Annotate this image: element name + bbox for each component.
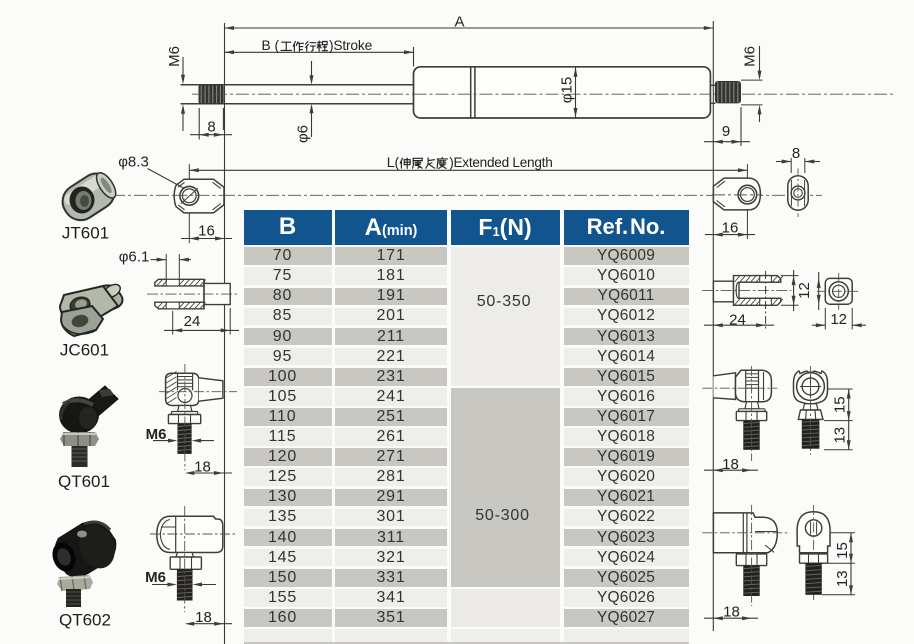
svg-text:12: 12 xyxy=(796,282,813,299)
svg-text:15: 15 xyxy=(834,542,851,559)
svg-text:9: 9 xyxy=(722,123,730,140)
svg-text:φ6.1: φ6.1 xyxy=(119,249,150,266)
svg-text:18: 18 xyxy=(722,456,739,473)
svg-text:M6: M6 xyxy=(145,569,166,586)
svg-text:φ15: φ15 xyxy=(559,77,576,103)
svg-text:QT602: QT602 xyxy=(59,611,111,630)
svg-text:M6: M6 xyxy=(166,46,183,67)
svg-text:18: 18 xyxy=(195,609,212,626)
svg-text:13: 13 xyxy=(834,570,851,587)
svg-text:13: 13 xyxy=(832,427,849,444)
svg-text:16: 16 xyxy=(198,223,215,240)
svg-text:18: 18 xyxy=(723,604,740,621)
svg-text:)Stroke: )Stroke xyxy=(329,38,373,53)
svg-text:L(: L( xyxy=(387,154,400,170)
svg-text:B (: B ( xyxy=(262,38,280,53)
svg-text:M6: M6 xyxy=(742,46,759,67)
svg-text:24: 24 xyxy=(729,312,746,329)
svg-text:18: 18 xyxy=(194,459,211,476)
svg-text:JT601: JT601 xyxy=(62,224,109,243)
svg-text:φ6: φ6 xyxy=(295,125,312,143)
svg-text:φ8.3: φ8.3 xyxy=(118,154,149,171)
svg-text:12: 12 xyxy=(830,311,847,328)
svg-text:A: A xyxy=(454,14,464,31)
svg-text:24: 24 xyxy=(184,313,201,330)
svg-text:8: 8 xyxy=(207,119,215,136)
svg-text:QT601: QT601 xyxy=(58,472,110,491)
svg-text:)Extended Length: )Extended Length xyxy=(449,155,552,170)
svg-text:16: 16 xyxy=(722,220,739,237)
svg-text:8: 8 xyxy=(792,145,800,162)
svg-text:15: 15 xyxy=(832,396,849,413)
svg-text:JC601: JC601 xyxy=(60,341,109,360)
